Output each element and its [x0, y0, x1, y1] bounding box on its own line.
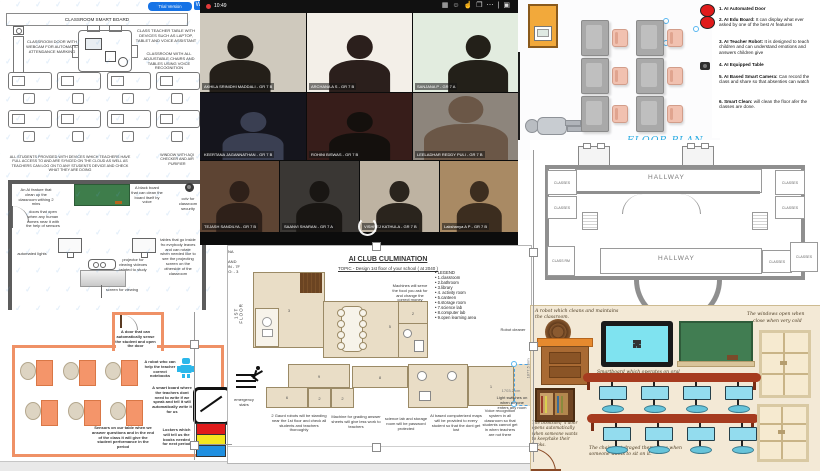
selection-handle[interactable] [190, 441, 199, 450]
screenshot-canvas: CLASSROOM SMART BOARD Trial Version W CL… [0, 0, 820, 471]
science-note: science lab and storage room will be pas… [384, 417, 428, 431]
tablet-screen [683, 386, 711, 400]
watermark-check-icon: ✔ [34, 151, 42, 161]
selection-handle[interactable] [190, 340, 199, 349]
stairs-shape [582, 212, 598, 230]
lockers-note: Lockers which will tell us the books nee… [160, 428, 193, 447]
plan-chair-shape[interactable] [667, 67, 683, 85]
tablet-screen [603, 427, 631, 441]
desk[interactable] [41, 400, 58, 426]
watermark-check-icon: ✔ [164, 170, 172, 180]
tablet-screen [725, 386, 753, 400]
windows-note-line2: close when very cold [753, 319, 819, 325]
windows-note-line1: The windows open when [747, 312, 819, 318]
student-desk-shape[interactable] [107, 72, 151, 90]
stool-shape [606, 446, 628, 454]
guards-note: 2 Gaurd robots will be standing near the… [270, 414, 328, 433]
room-6[interactable]: 6 [266, 387, 308, 408]
plan-table [682, 146, 714, 166]
tablet-screen [645, 427, 673, 441]
video-tile[interactable]: ARCHANA A S - GR 7 B [307, 13, 412, 92]
watermark-check-icon: ✔ [0, 75, 3, 85]
stool-shape [602, 405, 624, 413]
chalk-tray [677, 361, 755, 367]
smart-board-shape[interactable] [193, 387, 231, 425]
chair[interactable] [25, 402, 41, 420]
illustration-panel: A robot which cleans and maintains the c… [530, 305, 820, 471]
sensors-note: Sensors on our table when we answer ques… [92, 426, 154, 450]
tablet-screen [641, 386, 669, 400]
selection-handle[interactable] [372, 242, 381, 251]
hall-door-arc [622, 194, 643, 214]
room-bathrooms[interactable] [408, 364, 468, 408]
culmination-panel: ARCHANA A S CLASS AND SECTION - 7F ROLL … [227, 245, 532, 464]
watermark-check-icon: ✔ [0, 265, 3, 275]
robot-note: A robot who can help the teacher correct… [143, 360, 177, 379]
selection-handle[interactable] [529, 248, 538, 257]
watermark-check-icon: ✔ [134, 0, 142, 10]
room-9[interactable]: 9 [288, 364, 350, 388]
toilet-room [255, 308, 279, 347]
desk[interactable] [36, 360, 53, 386]
participant-name: AKHILA SRINIDHI MADDALI - GR 7 B [202, 83, 274, 90]
whiteboard-panel: CLASSROOM SMART BOARD Trial Version W CL… [0, 0, 215, 322]
watermark-check-icon: ✔ [4, 56, 12, 66]
raise-hand-icon[interactable]: ☝ [464, 2, 477, 9]
bathroom-fixtures [398, 323, 428, 358]
watermark-check-icon: ✔ [34, 0, 42, 10]
hallway-plan-panel: HALLWAY CLASSES CLASSES CLASSES CLASSES … [530, 140, 820, 310]
grading-note: Machine for grading answer sheets will g… [331, 415, 381, 429]
tablet-screen [599, 386, 627, 400]
hall-door-arc [680, 194, 701, 214]
watermark-check-icon: ✔ [0, 151, 3, 161]
watermark-check-icon: ✔ [54, 151, 62, 161]
room-classes: CLASSES [775, 170, 805, 195]
participant-name: SANJANA P - GR 7 A [415, 83, 457, 90]
stool-shape [690, 446, 712, 454]
watermark-check-icon: ✔ [0, 113, 3, 123]
room-classes: CLASSES [547, 170, 577, 195]
plan-table-shape[interactable] [581, 96, 609, 132]
smart-board-note: A smart board where the teachers dont ne… [152, 386, 192, 415]
dim-horizontal: 1703.2 cm [494, 389, 528, 394]
hallway-top [575, 169, 762, 193]
floor-label: 1ST FLOOR [234, 298, 245, 328]
watermark-check-icon: ✔ [0, 189, 3, 199]
feature-lead: 1. AI Automated Door [719, 6, 766, 11]
chairs-note: The chairs get draged themselves when so… [589, 446, 699, 458]
emergency-note: emergency stairs [230, 398, 258, 408]
chair[interactable] [63, 362, 79, 380]
watermark-check-icon: ✔ [114, 0, 122, 10]
teacher-table-note: CLASS TEACHER TABLE WITH DEVICES SUCH AS… [134, 29, 198, 43]
lights-note: Light switches on when anyone enters any… [496, 396, 528, 410]
voice-note: Voice recognition system in all classroo… [482, 409, 518, 438]
stool-shape [648, 446, 670, 454]
camera-icon [700, 62, 710, 70]
window-shape [757, 404, 809, 462]
robot-cleaner-note: A robot which cleans and maintains the c… [535, 309, 619, 321]
watermark-check-icon: ✔ [54, 0, 62, 10]
watermark-check-icon: ✔ [74, 151, 82, 161]
watermark-check-icon: ✔ [144, 170, 152, 180]
selection-handle[interactable] [529, 443, 538, 452]
plan-table-shape[interactable] [636, 20, 664, 56]
plan-door-board [534, 26, 552, 41]
bookshelf [535, 388, 575, 422]
student-desk-shape[interactable] [107, 110, 151, 128]
screenshot-icon[interactable]: ▣ [503, 2, 514, 9]
plan-door[interactable] [528, 4, 558, 48]
canteen-note: Machines will serve the food you ask for… [391, 284, 429, 303]
desk[interactable] [121, 360, 138, 386]
status-time: 10:49 [214, 3, 227, 9]
video-tile[interactable]: SANJANA P - GR 7 A [413, 13, 518, 92]
chair[interactable] [68, 402, 84, 420]
plan-table-shape[interactable] [581, 20, 609, 56]
pip-icon[interactable]: ❐ [476, 2, 486, 9]
plan-table-shape[interactable] [636, 58, 664, 94]
desk[interactable] [84, 400, 101, 426]
webcam-icon[interactable] [13, 26, 24, 35]
watermark-check-icon: ✔ [174, 0, 182, 10]
selection-handle-dot[interactable] [693, 26, 699, 32]
green-chalkboard [679, 321, 753, 365]
selection-handle-dot[interactable] [511, 361, 517, 367]
red-speaker-icon [700, 16, 715, 29]
watermark-check-icon: ✔ [94, 0, 102, 10]
selection-guide-line-vertical [533, 150, 534, 462]
maps-note: AI based computerized maps will be provi… [430, 414, 482, 433]
video-tile[interactable]: SAANVI SHARAN - GR 7 A [280, 161, 359, 232]
room-2b[interactable]: 2 [331, 388, 354, 408]
room-bath-top[interactable]: 2 [398, 301, 428, 325]
feature-lead: 3. AI Teacher Robot: [719, 39, 763, 44]
chair[interactable] [105, 362, 121, 380]
tablet-screen [687, 427, 715, 441]
bookshelf-note: The bookshelf 's door opens automaticall… [532, 420, 582, 447]
room-classes: CLASSES [775, 196, 805, 219]
plan-chair-shape[interactable] [667, 105, 683, 123]
plan-table [578, 146, 610, 166]
desk[interactable] [79, 360, 96, 386]
watermark-check-icon: ✔ [184, 18, 192, 28]
watermark-check-icon: ✔ [0, 227, 3, 237]
watermark-check-icon: ✔ [14, 0, 22, 10]
plan-chair-shape[interactable] [612, 67, 628, 85]
tablet-screen [729, 427, 757, 441]
stairs-shape [752, 212, 768, 230]
stool-shape [686, 405, 708, 413]
room-classes: CLASSES [762, 250, 792, 273]
participant-name: TEJASH SANDILYA - GR 7 B [202, 223, 258, 230]
selection-guide-line-horizontal [195, 444, 232, 445]
participant-name: LEELADHAR REDDY PULI - GR 7 B [415, 151, 485, 158]
room-2a[interactable]: 2 [308, 388, 331, 408]
room-8[interactable]: 8 [352, 366, 408, 388]
participants-icon[interactable]: ▦ [442, 2, 453, 9]
hallway-top-label: HALLWAY [648, 174, 685, 181]
robot-cleaner-note: Robot cleaner [500, 328, 526, 333]
watermark-check-icon: ✔ [0, 0, 3, 10]
locker-blue[interactable] [196, 445, 226, 457]
room-class-rm: CLASS RM [547, 246, 575, 276]
legend-line: 9.open learning area [435, 316, 513, 321]
participant-name: ARCHANA A S - GR 7 B [309, 83, 356, 90]
projector-shape[interactable] [88, 259, 116, 270]
plan-chair-shape[interactable] [612, 29, 628, 47]
legend: LEGEND 1.classroom 2.bathroom 3.library … [435, 271, 513, 321]
feature-lead: 6. Smart Clean: [719, 99, 752, 104]
cctv-camera-icon[interactable] [185, 183, 194, 192]
windows-logo-icon [633, 340, 641, 348]
watermark-check-icon: ✔ [114, 151, 122, 161]
plan-chair-shape[interactable] [667, 29, 683, 47]
video-tile[interactable]: AKHILA SRINIDHI MADDALI - GR 7 B [200, 13, 306, 92]
room-classes: CLASSES [547, 196, 577, 219]
plan-chair-shape[interactable] [612, 105, 628, 123]
video-tile[interactable]: LEELADHAR REDDY PULI - GR 7 B [413, 93, 518, 160]
watermark-check-icon: ✔ [0, 37, 3, 47]
video-tile[interactable]: Lakshanya A P - GR 7 B [440, 161, 518, 232]
helper-robot-icon[interactable] [178, 358, 194, 378]
video-call-panel: 10:49 ▦☺☝❐⋯|▣ AKHILA SRINIDHI MADDALI - … [200, 0, 518, 245]
watermark-check-icon: ✔ [184, 170, 192, 180]
feature-lead: 5. AI Based Smart Camera: [719, 74, 778, 79]
participant-name: SAANVI SHARAN - GR 7 A [282, 223, 335, 230]
watermark-check-icon: ✔ [24, 56, 32, 66]
plan-table-shape[interactable] [581, 58, 609, 94]
smartboard [601, 321, 673, 367]
video-call-toolbar: ▦☺☝❐⋯|▣ [442, 1, 514, 9]
features-panel: 1. AI Automated Door 2. AI Edu Board: It… [712, 0, 820, 138]
video-tile[interactable]: KEERTANA JAGANNATHAN - GR 7 B [200, 93, 306, 160]
participant-name: KEERTANA JAGANNATHAN - GR 7 B [202, 151, 274, 158]
watermark-check-icon: ✔ [154, 0, 162, 10]
stool-shape [732, 446, 754, 454]
stairs-corner [300, 273, 322, 293]
cleaning-robot-shape[interactable] [523, 112, 585, 138]
more-icon[interactable]: ⋯ [487, 2, 498, 9]
window-shape [759, 330, 811, 398]
participant-name: Lakshanya A P - GR 7 B [442, 223, 489, 230]
stool-shape [728, 405, 750, 413]
chair[interactable] [110, 402, 126, 420]
feature-lead: 2. AI Edu Board: [719, 17, 755, 22]
desk[interactable] [126, 400, 143, 426]
auto-door-note: A door that can automatically sense the … [113, 330, 158, 349]
loading-spinner-icon [358, 217, 377, 236]
orange-room-panel: A door that can automatically sense the … [0, 310, 232, 462]
watermark-check-icon: ✔ [14, 151, 22, 161]
culmination-title: AI CLUB CULMINATION [298, 256, 478, 264]
duster [727, 355, 738, 360]
selection-guide-line-vertical [194, 312, 195, 460]
watermark-check-icon: ✔ [204, 284, 212, 294]
watermark-check-icon: ✔ [204, 246, 212, 256]
stick-figure [246, 366, 264, 388]
selection-handle[interactable] [372, 443, 381, 452]
watermark-check-icon: ✔ [44, 56, 52, 66]
watermark-check-icon: ✔ [134, 151, 142, 161]
room-classes: CLASSES [790, 242, 818, 272]
student-line: ROLL NO: - 3 [227, 270, 244, 275]
floor-plan-panel: FLOOR PLAN [515, 0, 720, 160]
stool-shape [644, 405, 666, 413]
participant-name: ROHINI BISWAS - GR 7 B [309, 151, 360, 158]
video-tile[interactable]: TEJASH SANDILYA - GR 7 B [200, 161, 279, 232]
canteen-table [341, 306, 363, 352]
feature-lead: 4. AI Equipped Table [719, 62, 764, 67]
door-note: CLASSROOM DOOR WITH WEBCAM FOR AUTOMATIC… [26, 40, 78, 54]
watermark-check-icon: ✔ [94, 151, 102, 161]
watermark-check-icon: ✔ [74, 0, 82, 10]
reactions-icon[interactable]: ☺ [452, 2, 463, 9]
plan-table-shape[interactable] [636, 96, 664, 132]
hallway-bottom-label: HALLWAY [658, 255, 695, 262]
selection-handle[interactable] [529, 342, 538, 351]
chair[interactable] [20, 362, 36, 380]
recording-icon [206, 4, 211, 9]
video-tile[interactable]: ROHINI BISWAS - GR 7 B [307, 93, 412, 160]
